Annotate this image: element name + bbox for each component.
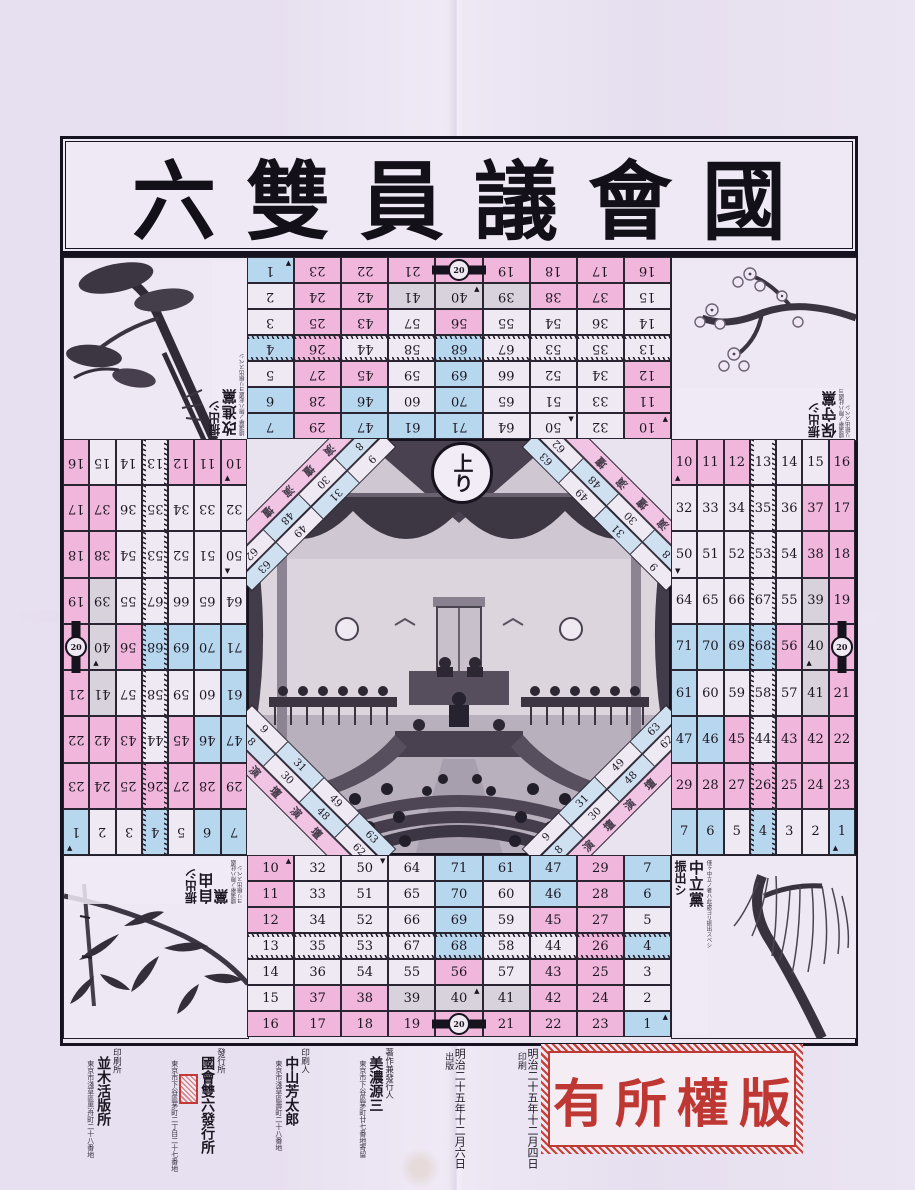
direction-marker: ▲ — [673, 474, 681, 482]
cell-number: 28 — [199, 779, 216, 792]
cell-number: 64 — [676, 594, 693, 607]
cell-number: 53 — [755, 548, 772, 561]
cell-number: 27 — [309, 368, 326, 381]
cell-number: 22 — [834, 733, 851, 746]
board-cell-45: 45 — [168, 716, 194, 762]
start-label: 振出シ — [185, 868, 197, 904]
cell-number: 29 — [676, 779, 693, 792]
board-cell-42: 42 — [530, 985, 577, 1011]
board-cell-51: 51 — [194, 531, 220, 577]
cell-number: 11 — [639, 394, 656, 407]
colophon-role: 發行所 — [215, 1048, 224, 1182]
cell-number: 55 — [781, 594, 798, 607]
board-cell-52: 52 — [530, 361, 577, 387]
cell-number: 38 — [357, 992, 374, 1005]
cell-number: 47 — [545, 862, 562, 875]
cell-number: 2 — [98, 825, 106, 838]
board-cell-47: 47 — [221, 716, 247, 762]
cell-number: 17 — [68, 502, 85, 515]
board-cell-65: 65 — [483, 387, 530, 413]
board-cell-39: 39 — [89, 578, 115, 624]
board-cell-5: 5 — [624, 907, 671, 933]
board-cell-44: 44 — [750, 716, 776, 762]
board-cell-40: 40▲ — [802, 624, 828, 670]
cell-number: 47 — [357, 420, 374, 433]
board-cell-67: 67 — [142, 578, 168, 624]
cell-number: 38 — [94, 548, 111, 561]
colophon-entry: 明治二十五年十二月六日出版 — [442, 1048, 465, 1182]
board-cell-70: 70 — [435, 387, 482, 413]
board-cell-50: 50▼ — [530, 413, 577, 439]
board-cell-43: 43 — [341, 309, 388, 335]
cell-number: 16 — [262, 1018, 279, 1031]
cell-number: 43 — [120, 733, 137, 746]
cell-number: 17 — [309, 1018, 326, 1031]
cell-number: 40 — [451, 992, 468, 1005]
cell-number: 46 — [702, 733, 719, 746]
board-cell-71: 71 — [221, 624, 247, 670]
board-cell-58: 58 — [483, 933, 530, 959]
board-cell-38: 38 — [530, 283, 577, 309]
board-cell-23: 23 — [294, 257, 341, 283]
board-cell-1: 1▲ — [624, 1011, 671, 1037]
board-cell-53: 53 — [530, 335, 577, 361]
board-cell-16: 16 — [247, 1011, 294, 1037]
barrier-circle: 20 — [65, 636, 87, 658]
cell-number: 71 — [451, 420, 468, 433]
cell-number: 15 — [94, 456, 111, 469]
board-cell-22: 22 — [829, 716, 855, 762]
board-cell-25: 25 — [116, 763, 142, 809]
cell-number: 3 — [643, 966, 651, 979]
cell-number: 16 — [834, 456, 851, 469]
board-cell-59: 59 — [168, 670, 194, 716]
board-cell-7: 7 — [247, 413, 294, 439]
board-cell-26: 26 — [577, 933, 624, 959]
cell-number: 33 — [702, 502, 719, 515]
board-cell-59: 59 — [724, 670, 750, 716]
board-cell-40: 40▲ — [89, 624, 115, 670]
cell-number: 42 — [94, 733, 111, 746]
cell-number: 69 — [728, 640, 745, 653]
copyright-stamp: 版權所有 — [541, 1044, 803, 1154]
board-cell-56: 56 — [776, 624, 802, 670]
board-cell-34: 34 — [724, 485, 750, 531]
board-cell-11: 11 — [697, 439, 723, 485]
cell-number: 43 — [545, 966, 562, 979]
cell-number: 32 — [676, 502, 693, 515]
cell-number: 41 — [404, 290, 421, 303]
board-cell-12: 12 — [168, 439, 194, 485]
cell-number: 5 — [643, 914, 651, 927]
cell-number: 42 — [807, 733, 824, 746]
cell-number: 14 — [120, 456, 137, 469]
board-cell-5: 5 — [247, 361, 294, 387]
board-cell-7: 7 — [671, 809, 697, 855]
board-cell-37: 37 — [294, 985, 341, 1011]
cell-number: 32 — [309, 862, 326, 875]
cell-number: 69 — [451, 368, 468, 381]
board-cell-70: 70 — [697, 624, 723, 670]
board-cell-42: 42 — [802, 716, 828, 762]
board-cell-4: 4 — [247, 335, 294, 361]
cell-number: 3 — [125, 825, 133, 838]
cell-number: 40 — [451, 290, 468, 303]
track-band-bottom: 10▲3250▼64716147297113351657060462861234… — [247, 855, 671, 1037]
cell-number: 12 — [639, 368, 656, 381]
cell-number: 46 — [357, 394, 374, 407]
board-cell-57: 57 — [776, 670, 802, 716]
cell-number: 3 — [785, 825, 793, 838]
cell-number: 70 — [451, 394, 468, 407]
cell-number: 47 — [676, 733, 693, 746]
board-cell-45: 45 — [530, 907, 577, 933]
board-cell-61: 61 — [671, 670, 697, 716]
cell-number: 35 — [147, 502, 164, 515]
party-start-bottom-right: 振出シ 中立黨 僅ヶ中立ノ者ハ此處ヨリ振出スベシ — [674, 860, 708, 1034]
cell-number: 14 — [639, 316, 656, 329]
board-cell-44: 44 — [341, 335, 388, 361]
board-cell-26: 26 — [142, 763, 168, 809]
board-cell-54: 54 — [776, 531, 802, 577]
cell-number: 70 — [199, 640, 216, 653]
board-cell-58: 58 — [388, 335, 435, 361]
board-cell-54: 54 — [341, 959, 388, 985]
cell-number: 1 — [266, 264, 274, 277]
cell-number: 32 — [592, 420, 609, 433]
board-cell-14: 14 — [624, 309, 671, 335]
board-cell-18: 18 — [530, 257, 577, 283]
board-cell-36: 36 — [116, 485, 142, 531]
board-cell-26: 26 — [750, 763, 776, 809]
cell-number: 24 — [592, 992, 609, 1005]
cell-number: 19 — [834, 594, 851, 607]
cell-number: 44 — [147, 733, 164, 746]
cell-number: 28 — [592, 888, 609, 901]
cell-number: 5 — [733, 825, 741, 838]
board-cell-64: 64 — [388, 855, 435, 881]
board-cell-55: 55 — [388, 959, 435, 985]
cell-number: 37 — [592, 290, 609, 303]
board-cell-1: 1▲ — [829, 809, 855, 855]
board-cell-36: 36 — [577, 309, 624, 335]
cell-number: 2 — [811, 825, 819, 838]
board-cell-41: 41 — [483, 985, 530, 1011]
cell-number: 52 — [173, 548, 190, 561]
start-label: 振出シ — [808, 402, 820, 438]
board-cell-27: 27 — [294, 361, 341, 387]
cell-number: 23 — [68, 779, 85, 792]
game-board: 總選擧ノ際ハ此處ヨリ振出スベシ 改進黨 振出シ 總選擧ノ際ハ此處ヨリ振出スベシ … — [60, 254, 858, 1046]
direction-marker: ▲ — [91, 659, 99, 667]
cell-number: 40 — [94, 640, 111, 653]
title-frame: 國會議員雙六 — [60, 136, 858, 254]
cell-number: 6 — [266, 394, 274, 407]
cell-number: 26 — [147, 779, 164, 792]
cell-number: 23 — [834, 779, 851, 792]
cell-number: 3 — [266, 316, 274, 329]
barrier-circle: 20 — [448, 259, 470, 281]
cell-number: 56 — [451, 966, 468, 979]
cell-number: 65 — [702, 594, 719, 607]
cell-number: 16 — [639, 264, 656, 277]
board-cell-56: 56 — [116, 624, 142, 670]
board-cell-38: 38 — [89, 531, 115, 577]
cell-number: 43 — [357, 316, 374, 329]
board-cell-70: 70 — [194, 624, 220, 670]
board-cell-53: 53 — [142, 531, 168, 577]
cell-number: 33 — [309, 888, 326, 901]
board-cell-10: 10▲ — [624, 413, 671, 439]
cell-number: 53 — [545, 342, 562, 355]
board-cell-66: 66 — [724, 578, 750, 624]
colophon-address: 東京市淺草區壽町二十八番地 — [274, 1060, 282, 1182]
cell-number: 24 — [309, 290, 326, 303]
board-cell-54: 54 — [530, 309, 577, 335]
cell-number: 37 — [309, 992, 326, 1005]
board-cell-12: 12 — [724, 439, 750, 485]
board-cell-69: 69 — [435, 907, 482, 933]
board-cell-65: 65 — [194, 578, 220, 624]
cell-number: 35 — [592, 342, 609, 355]
board-cell-71: 71 — [435, 855, 482, 881]
board-cell-67: 67 — [750, 578, 776, 624]
board-cell-13: 13 — [142, 439, 168, 485]
cell-number: 11 — [199, 456, 216, 469]
direction-marker: ▼ — [380, 857, 385, 865]
cell-number: 2 — [266, 290, 274, 303]
cell-number: 18 — [357, 1018, 374, 1031]
cell-number: 40 — [807, 640, 824, 653]
board-cell-46: 46 — [697, 716, 723, 762]
board-cell-3: 3 — [776, 809, 802, 855]
publisher-seal — [179, 1074, 198, 1104]
colophon-date-label: 印刷 — [515, 1052, 525, 1182]
board-cell-16: 16 — [63, 439, 89, 485]
barrier-circle: 20 — [448, 1013, 470, 1035]
cell-number: 25 — [120, 779, 137, 792]
board-cell-6: 6 — [194, 809, 220, 855]
cell-number: 67 — [498, 342, 515, 355]
board-cell-37: 37 — [577, 283, 624, 309]
cell-number: 4 — [759, 825, 767, 838]
cell-number: 37 — [94, 502, 111, 515]
board-cell-47: 47 — [530, 855, 577, 881]
cell-number: 21 — [498, 1018, 515, 1031]
board-cell-29: 29 — [577, 855, 624, 881]
cell-number: 57 — [404, 316, 421, 329]
cell-number: 22 — [357, 264, 374, 277]
cell-number: 32 — [226, 502, 243, 515]
cell-number: 59 — [404, 368, 421, 381]
board-cell-71: 71 — [671, 624, 697, 670]
sugoroku-board-scan: { "title": "國會議員雙六", "goal_label": "上り",… — [0, 0, 915, 1190]
board-cell-32: 32 — [671, 485, 697, 531]
board-cell-24: 24 — [577, 985, 624, 1011]
board-cell-21: 21 — [483, 1011, 530, 1037]
corner-bamboo: 總選擧ノ際ハ此處ヨリ振出スベシ 自由黨 振出シ — [63, 855, 249, 1039]
cell-number: 27 — [728, 779, 745, 792]
board-cell-68: 68 — [750, 624, 776, 670]
cell-number: 39 — [498, 290, 515, 303]
cell-number: 52 — [728, 548, 745, 561]
board-cell-5: 5 — [724, 809, 750, 855]
board-cell-7: 7 — [221, 809, 247, 855]
cell-number: 26 — [592, 940, 609, 953]
board-cell-23: 23 — [829, 763, 855, 809]
board-cell-64: 64 — [483, 413, 530, 439]
cell-number: 55 — [404, 966, 421, 979]
board-cell-23: 23 — [577, 1011, 624, 1037]
board-cell-1: 1▲ — [63, 809, 89, 855]
board-cell-17: 17 — [829, 485, 855, 531]
board-cell-52: 52 — [168, 531, 194, 577]
cell-number: 17 — [592, 264, 609, 277]
cell-number: 12 — [728, 456, 745, 469]
board-cell-19: 19 — [63, 578, 89, 624]
direction-marker: ▲ — [831, 844, 839, 852]
board-cell-5: 5 — [168, 809, 194, 855]
board-cell-3: 3 — [116, 809, 142, 855]
board-cell-12: 12 — [624, 361, 671, 387]
cell-number: 38 — [807, 548, 824, 561]
cell-number: 54 — [120, 548, 137, 561]
cell-number: 21 — [68, 687, 85, 700]
board-cell-37: 37 — [89, 485, 115, 531]
direction-marker: ▲ — [474, 285, 479, 293]
colophon-entry: 著作兼發行人美濃源三東京市下谷區茅町廿七番地寄留 — [358, 1048, 392, 1182]
direction-marker: ▲ — [286, 857, 291, 865]
board-cell-25: 25 — [577, 959, 624, 985]
board-cell-35: 35 — [142, 485, 168, 531]
cell-number: 57 — [781, 687, 798, 700]
cell-number: 45 — [357, 368, 374, 381]
cell-number: 4 — [643, 940, 651, 953]
board-cell-25: 25 — [776, 763, 802, 809]
board-cell-41: 41 — [89, 670, 115, 716]
board-cell-41: 41 — [802, 670, 828, 716]
board-cell-69: 69 — [724, 624, 750, 670]
board-cell-18: 18 — [63, 531, 89, 577]
cell-number: 69 — [173, 640, 190, 653]
cell-number: 33 — [199, 502, 216, 515]
board-cell-33: 33 — [577, 387, 624, 413]
party-name: 自由黨 — [199, 858, 229, 904]
board-cell-44: 44 — [530, 933, 577, 959]
cell-number: 59 — [728, 687, 745, 700]
cell-number: 57 — [498, 966, 515, 979]
start-label: 振出シ — [674, 860, 686, 896]
board-cell-51: 51 — [341, 881, 388, 907]
cell-number: 68 — [755, 640, 772, 653]
board-cell-68: 68 — [435, 335, 482, 361]
colophon-entry: 印刷人中山芳太郎東京市淺草區壽町二十八番地 — [274, 1048, 308, 1182]
cell-number: 35 — [755, 502, 772, 515]
party-start-top-right: 總選擧ノ際ハ此處ヨリ振出スベシ 保守黨 振出シ — [676, 388, 852, 438]
cell-number: 41 — [498, 992, 515, 1005]
board-cell-23: 23 — [63, 763, 89, 809]
cell-number: 23 — [309, 264, 326, 277]
corner-willow: 振出シ 中立黨 僅ヶ中立ノ者ハ此處ヨリ振出スベシ — [671, 855, 857, 1039]
board-cell-60: 60 — [388, 387, 435, 413]
board-cell-13: 13 — [624, 335, 671, 361]
cell-number: 18 — [545, 264, 562, 277]
board-cell-22: 22 — [341, 257, 388, 283]
cell-number: 7 — [230, 825, 238, 838]
board-cell-15: 15 — [247, 985, 294, 1011]
board-cell-66: 66 — [388, 907, 435, 933]
board-cell-17: 17 — [577, 257, 624, 283]
cell-number: 46 — [199, 733, 216, 746]
cell-number: 60 — [404, 394, 421, 407]
board-cell-21: 21 — [388, 257, 435, 283]
board-cell-44: 44 — [142, 716, 168, 762]
colophon-name: 中山芳太郎 — [283, 1056, 298, 1182]
colophon-entry: 發行所國會雙六發行所東京市下谷區茅町二丁目二十七番地 — [170, 1048, 224, 1182]
board-cell-66: 66 — [168, 578, 194, 624]
cell-number: 13 — [755, 456, 772, 469]
board-cell-15: 15 — [89, 439, 115, 485]
cell-number: 6 — [643, 888, 651, 901]
cell-number: 70 — [451, 888, 468, 901]
cell-number: 58 — [404, 342, 421, 355]
cell-number: 70 — [702, 640, 719, 653]
board-cell-20: 20 — [435, 1011, 482, 1037]
cell-number: 51 — [357, 888, 374, 901]
board-cell-37: 37 — [802, 485, 828, 531]
cell-number: 18 — [68, 548, 85, 561]
board-cell-47: 47 — [671, 716, 697, 762]
board-cell-45: 45 — [341, 361, 388, 387]
party-note: 總選擧ノ際ハ此處ヨリ振出スベシ — [240, 354, 246, 437]
cell-number: 38 — [545, 290, 562, 303]
board-cell-7: 7 — [624, 855, 671, 881]
cell-number: 54 — [781, 548, 798, 561]
cell-number: 7 — [680, 825, 688, 838]
cell-number: 10 — [676, 456, 693, 469]
copyright-stamp-text: 版權所有 — [553, 1062, 801, 1137]
board-cell-15: 15 — [802, 439, 828, 485]
board-cell-65: 65 — [697, 578, 723, 624]
barrier-circle: 20 — [831, 636, 853, 658]
board-cell-50: 50▼ — [341, 855, 388, 881]
cell-number: 21 — [404, 264, 421, 277]
cell-number: 5 — [177, 825, 185, 838]
board-cell-3: 3 — [624, 959, 671, 985]
cell-number: 45 — [173, 733, 190, 746]
cell-number: 53 — [357, 940, 374, 953]
board-cell-40: 40▲ — [435, 985, 482, 1011]
cell-number: 14 — [262, 966, 279, 979]
cell-number: 25 — [592, 966, 609, 979]
cell-number: 11 — [262, 888, 279, 901]
cell-number: 67 — [147, 594, 164, 607]
cell-number: 51 — [545, 394, 562, 407]
board-cell-33: 33 — [294, 881, 341, 907]
cell-number: 25 — [309, 316, 326, 329]
cell-number: 44 — [755, 733, 772, 746]
board-cell-59: 59 — [483, 907, 530, 933]
board-cell-2: 2 — [624, 985, 671, 1011]
cell-number: 58 — [147, 687, 164, 700]
cell-number: 68 — [451, 342, 468, 355]
cell-number: 42 — [545, 992, 562, 1005]
cell-number: 54 — [357, 966, 374, 979]
board-cell-20: 20 — [435, 257, 482, 283]
board-cell-34: 34 — [294, 907, 341, 933]
cell-number: 41 — [807, 687, 824, 700]
cell-number: 61 — [498, 862, 515, 875]
